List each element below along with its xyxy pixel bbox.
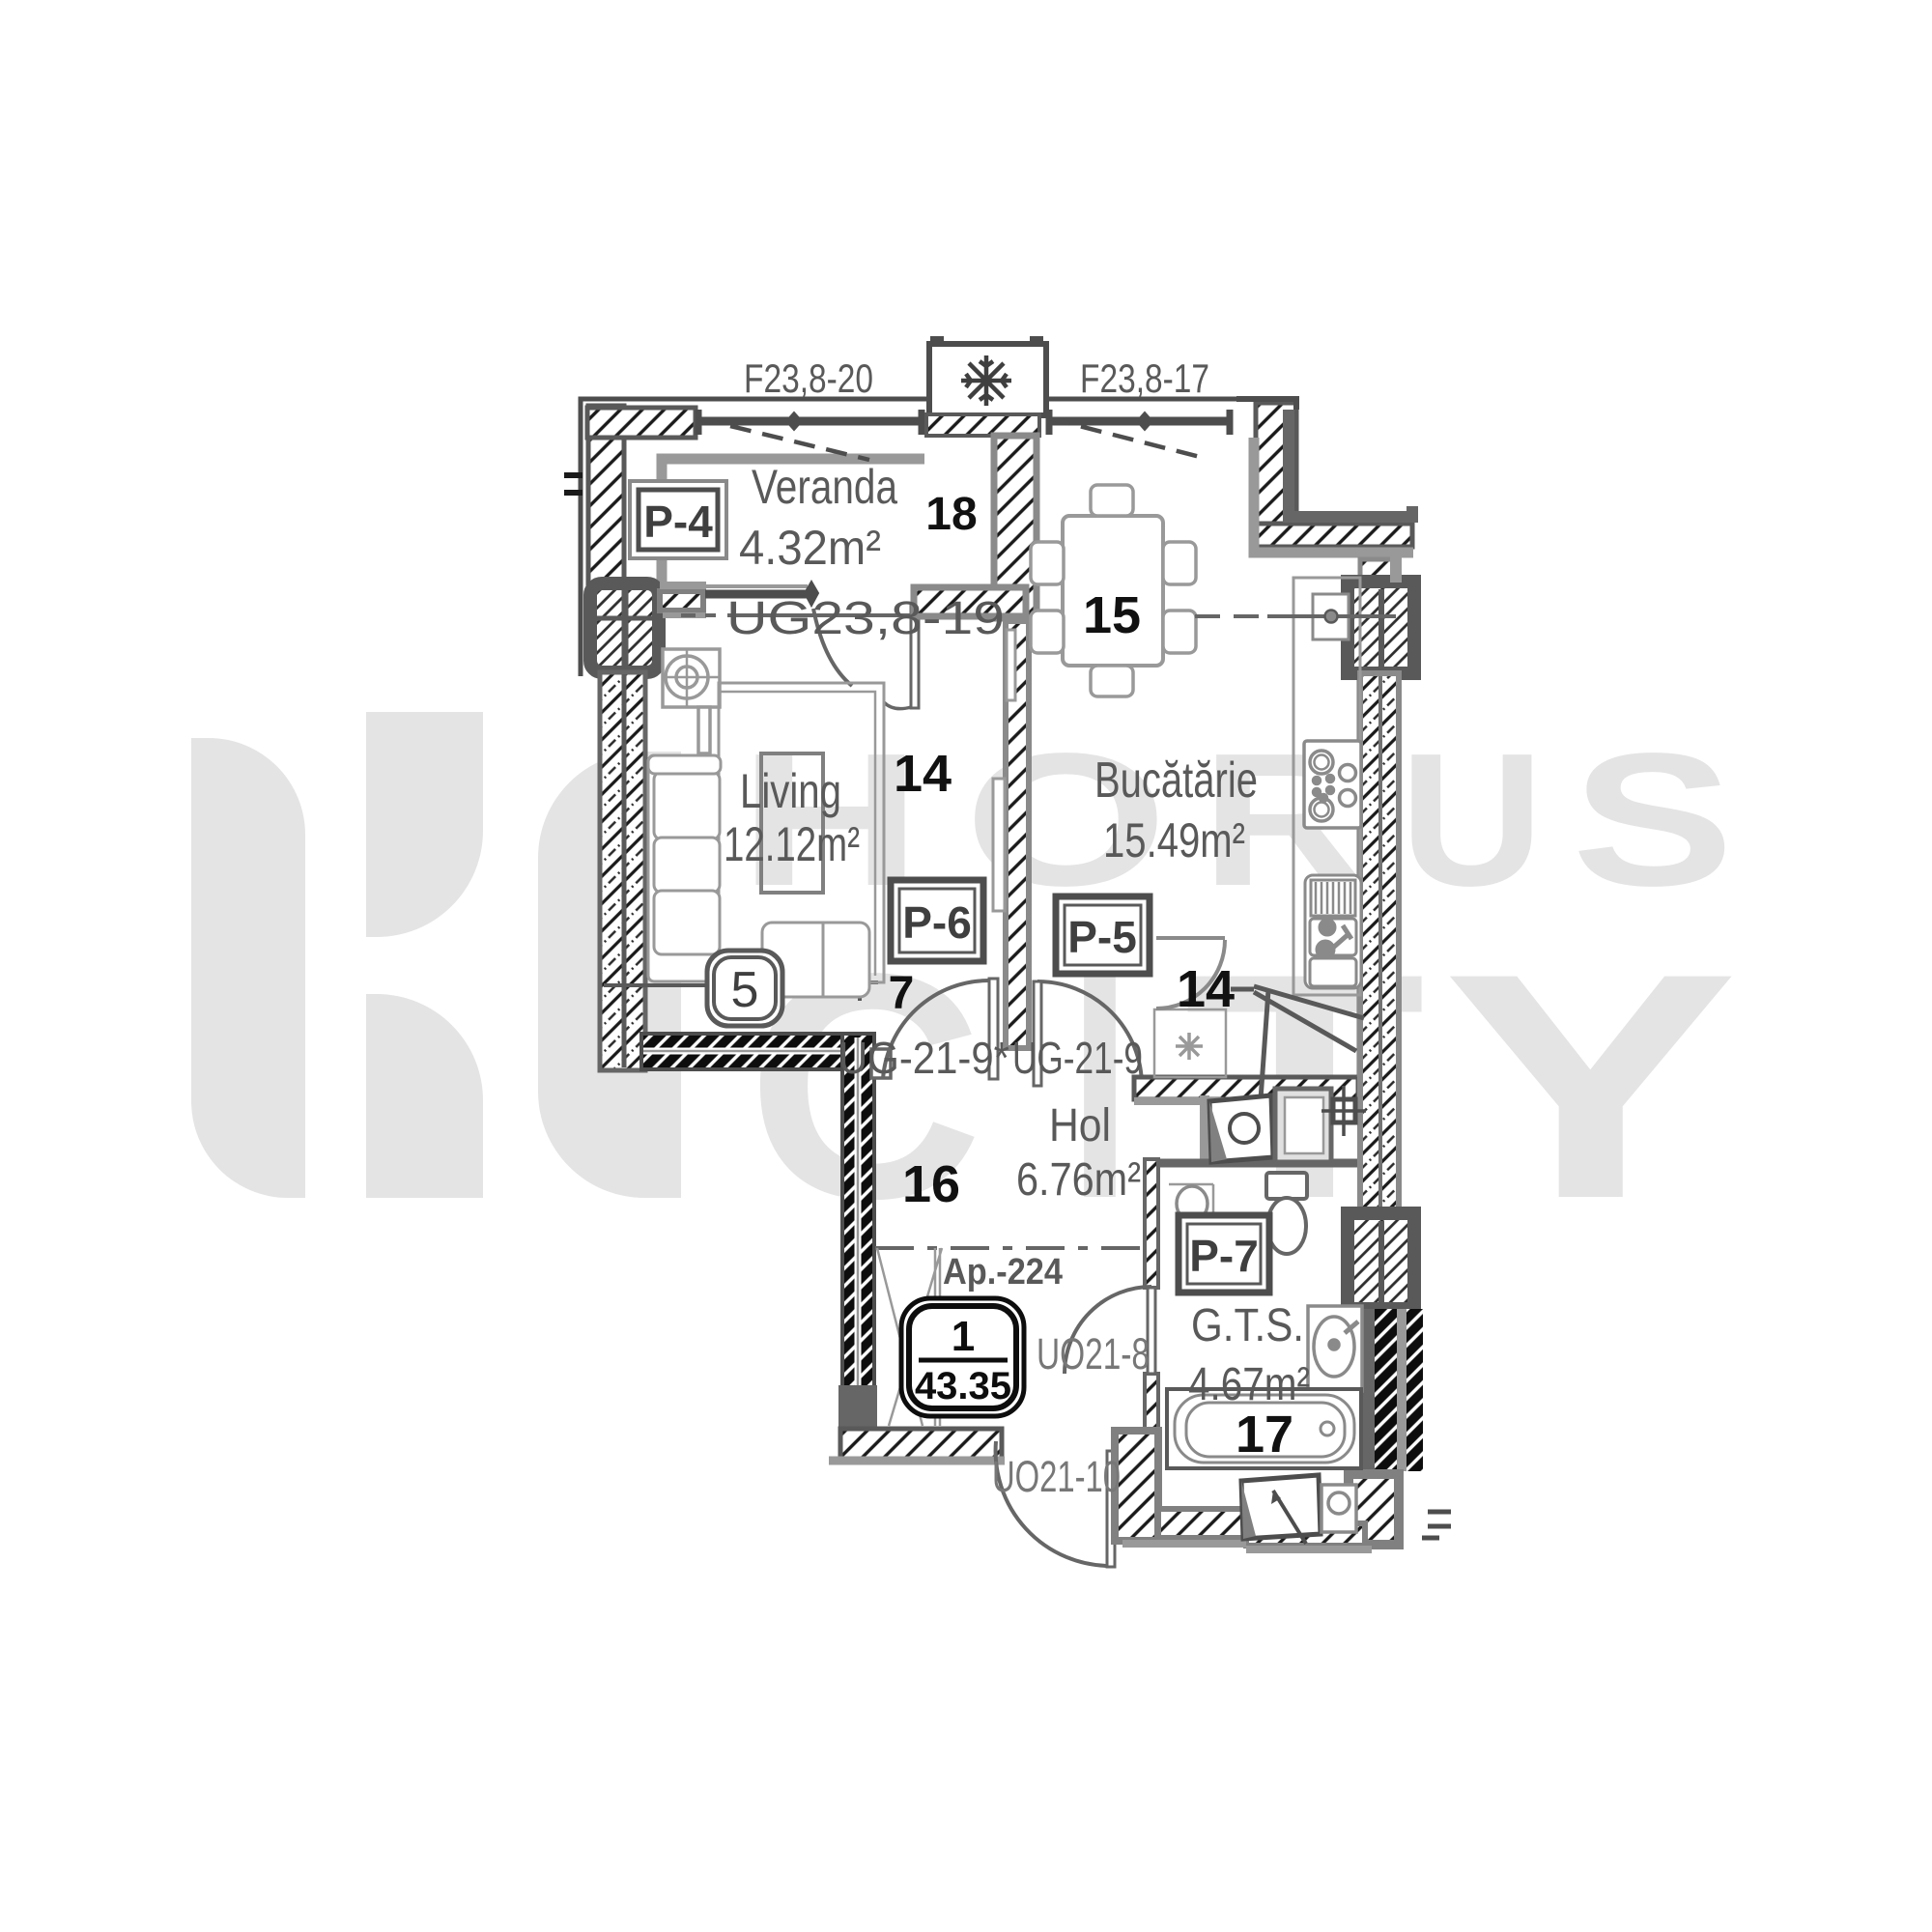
svg-text:7: 7 [889, 968, 915, 1019]
svg-text:15.49m²: 15.49m² [1103, 813, 1245, 867]
svg-text:UG-21-9: UG-21-9 [1012, 1033, 1143, 1083]
svg-text:Y: Y [1442, 907, 1739, 1265]
svg-text:S: S [1572, 714, 1734, 925]
svg-text:Bucătărie: Bucătărie [1094, 753, 1258, 809]
svg-text:17: 17 [1236, 1406, 1293, 1463]
svg-text:Hol: Hol [1049, 1100, 1111, 1151]
svg-text:4.32m²: 4.32m² [739, 521, 881, 575]
svg-text:P-4: P-4 [643, 497, 713, 547]
svg-text:1: 1 [952, 1313, 975, 1360]
svg-text:UG23,8-19: UG23,8-19 [726, 593, 1005, 644]
svg-text:16: 16 [902, 1155, 960, 1213]
svg-text:Veranda: Veranda [752, 460, 897, 514]
svg-text:F23,8-17: F23,8-17 [1080, 355, 1209, 401]
svg-text:UO21-10: UO21-10 [992, 1452, 1121, 1501]
svg-text:Living: Living [740, 764, 841, 818]
svg-text:43.35: 43.35 [915, 1365, 1011, 1407]
svg-text:12.12m²: 12.12m² [724, 817, 860, 871]
svg-text:G.T.S.: G.T.S. [1191, 1300, 1304, 1351]
svg-text:4.67m²: 4.67m² [1188, 1359, 1310, 1410]
svg-text:Ap.-224: Ap.-224 [943, 1252, 1063, 1293]
svg-text:5: 5 [731, 962, 759, 1018]
svg-text:14: 14 [894, 745, 952, 803]
svg-text:15: 15 [1083, 586, 1141, 644]
svg-text:P-5: P-5 [1067, 912, 1137, 962]
svg-text:14: 14 [1177, 960, 1235, 1018]
svg-text:U: U [1400, 714, 1544, 925]
svg-text:UO21-8: UO21-8 [1037, 1329, 1150, 1378]
svg-text:P-6: P-6 [902, 897, 972, 948]
svg-text:UG-21-9*: UG-21-9* [838, 1033, 1009, 1083]
svg-text:18: 18 [925, 489, 977, 540]
svg-text:6.76m²: 6.76m² [1016, 1154, 1141, 1206]
svg-text:P-7: P-7 [1189, 1231, 1259, 1281]
svg-text:F23,8-20: F23,8-20 [744, 355, 873, 401]
